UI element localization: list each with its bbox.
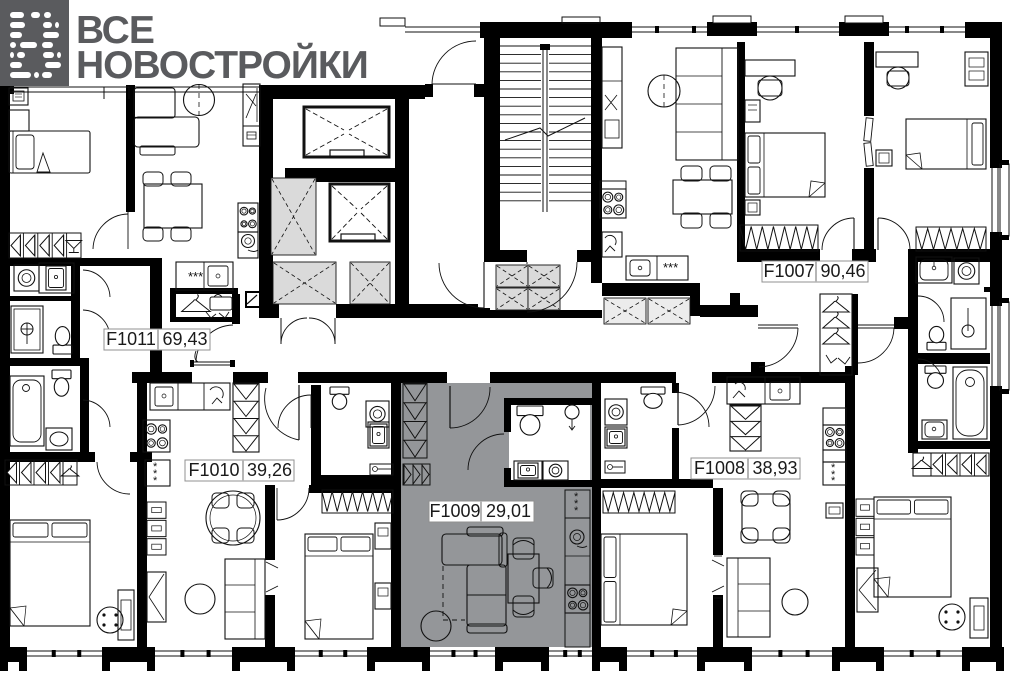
- svg-text:90,46: 90,46: [820, 261, 865, 281]
- svg-text:*: *: [574, 505, 579, 517]
- svg-text:38,93: 38,93: [752, 458, 797, 478]
- svg-text:*: *: [153, 475, 158, 487]
- svg-text:69,43: 69,43: [162, 329, 207, 349]
- svg-text:F1008: F1008: [694, 458, 745, 478]
- svg-text:F1010: F1010: [188, 460, 239, 480]
- svg-text:29,01: 29,01: [486, 501, 531, 521]
- svg-text:39,26: 39,26: [247, 460, 292, 480]
- svg-text:F1011: F1011: [106, 329, 156, 349]
- svg-text:F1007: F1007: [763, 261, 814, 281]
- svg-text:***: ***: [188, 269, 203, 284]
- svg-text:НОВОСТРОЙКИ: НОВОСТРОЙКИ: [76, 42, 368, 87]
- svg-text:***: ***: [663, 260, 678, 275]
- svg-text:*: *: [831, 475, 836, 487]
- svg-text:F1009: F1009: [429, 501, 480, 521]
